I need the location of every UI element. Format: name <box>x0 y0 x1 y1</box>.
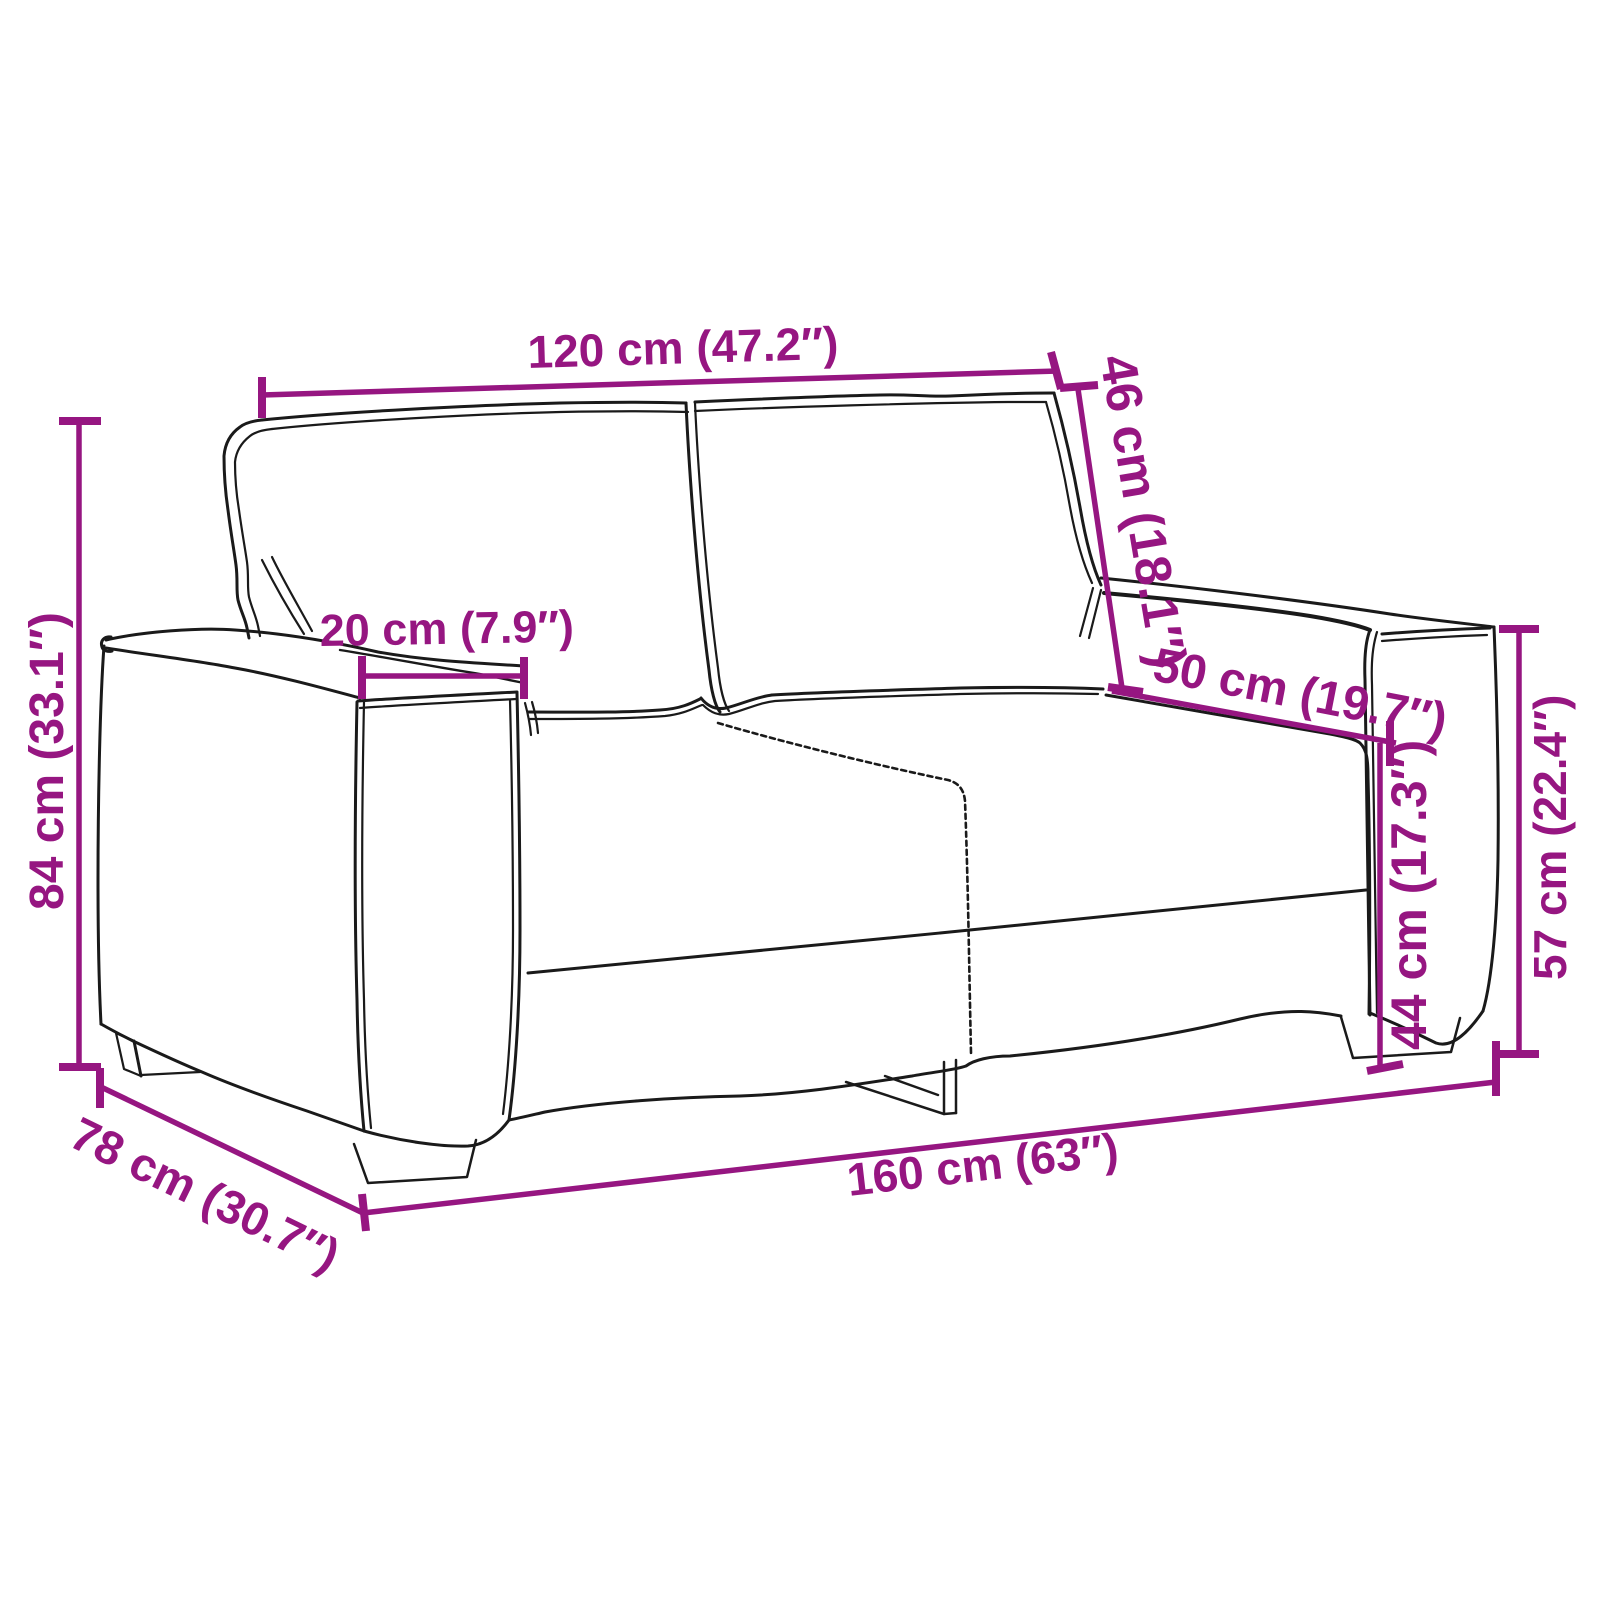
svg-text:84 cm (33.1″): 84 cm (33.1″) <box>21 612 74 910</box>
svg-text:57 cm (22.4″): 57 cm (22.4″) <box>1524 695 1576 980</box>
svg-text:120 cm (47.2″): 120 cm (47.2″) <box>527 317 839 378</box>
svg-text:20 cm (7.9″): 20 cm (7.9″) <box>319 601 574 656</box>
svg-text:44 cm (17.3″): 44 cm (17.3″) <box>1381 740 1437 1050</box>
